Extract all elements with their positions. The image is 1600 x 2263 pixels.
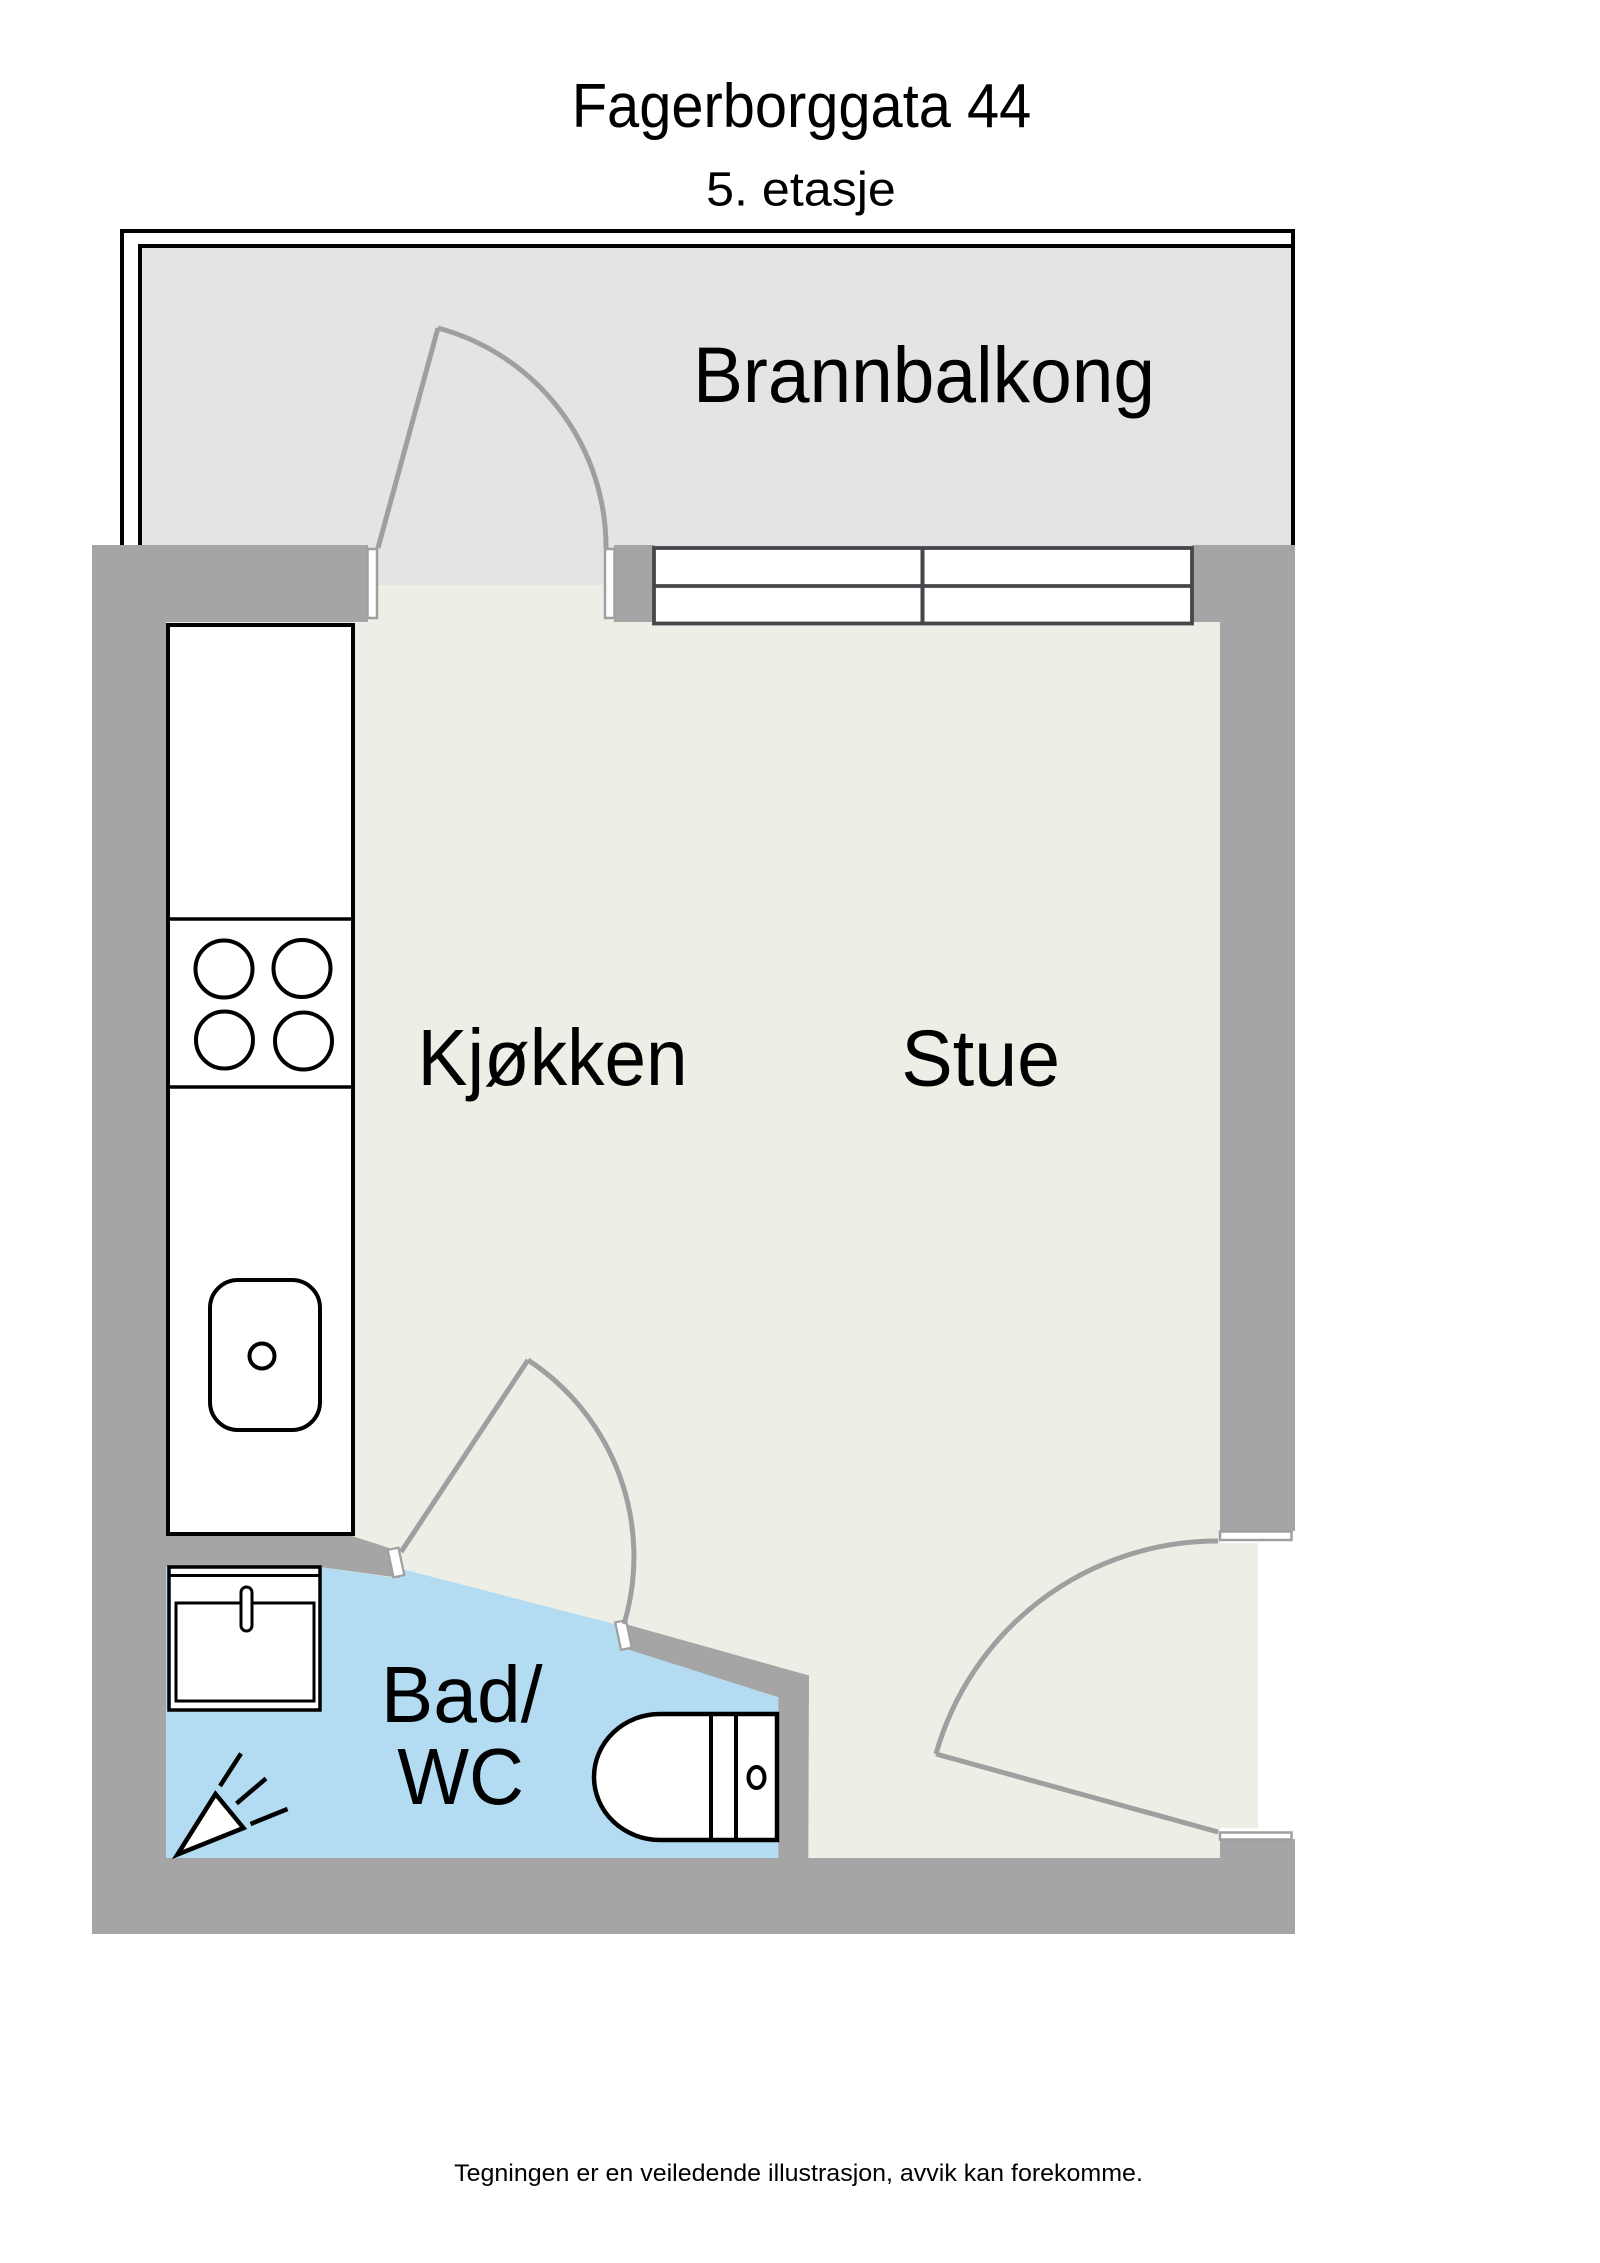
svg-text:Stue: Stue <box>901 1014 1060 1103</box>
svg-text:Brannbalkong: Brannbalkong <box>693 330 1155 419</box>
svg-text:5. etasje: 5. etasje <box>706 164 896 217</box>
svg-text:Kjøkken: Kjøkken <box>418 1013 688 1102</box>
svg-text:WC: WC <box>397 1732 524 1821</box>
svg-text:Fagerborggata 44: Fagerborggata 44 <box>572 72 1032 141</box>
svg-text:Tegningen er en veiledende ill: Tegningen er en veiledende illustrasjon,… <box>454 2160 1143 2187</box>
svg-text:Bad/: Bad/ <box>381 1650 543 1739</box>
